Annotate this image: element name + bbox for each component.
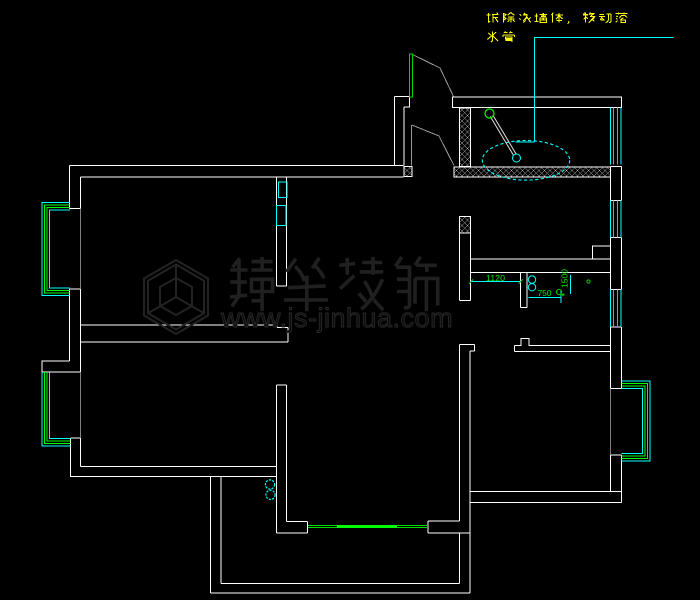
- svg-text:1120: 1120: [486, 273, 505, 283]
- svg-text:750: 750: [538, 288, 552, 298]
- svg-text:www.js-jinhua.com: www.js-jinhua.com: [220, 303, 453, 333]
- svg-text:1500: 1500: [560, 269, 570, 288]
